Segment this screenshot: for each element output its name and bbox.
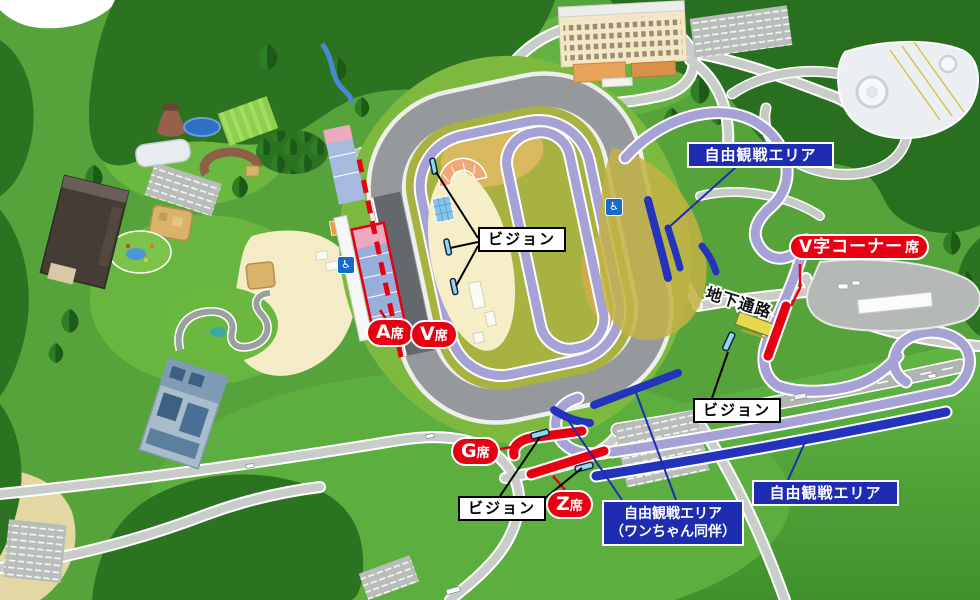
v-corner-seat-name: V字コーナー xyxy=(799,237,903,257)
dog-label-line1: 自由観戦エリア xyxy=(624,506,722,522)
vision-label-south: ビジョン xyxy=(458,496,546,521)
v-corner-seat-suffix: 席 xyxy=(905,240,919,257)
v-corner-seat-label: V字コーナー席 xyxy=(789,234,929,260)
seat-g-badge: G席 xyxy=(451,437,500,466)
seat-g-suffix: 席 xyxy=(477,446,490,462)
seat-v-letter: V xyxy=(420,323,435,346)
seat-g-letter: G xyxy=(461,440,477,463)
dog-label-line2: （ワンちゃん同伴） xyxy=(610,524,736,540)
seat-v-badge: V席 xyxy=(410,320,458,349)
pond xyxy=(184,118,220,136)
wheelchair-icon: ♿ xyxy=(337,256,355,274)
seat-z-letter: Z xyxy=(556,493,570,516)
seat-z-badge: Z席 xyxy=(546,490,593,519)
vision-label-center: ビジョン xyxy=(478,227,566,252)
free-viewing-area-label-south: 自由観戦エリア xyxy=(752,480,899,506)
seat-a-suffix: 席 xyxy=(391,327,404,343)
circuit-resort-map: 地下通路 自由観戦エリア V字コーナー席 ビジョン ビジョン ビジョン A席 V… xyxy=(0,0,980,600)
free-viewing-area-label-top: 自由観戦エリア xyxy=(687,142,834,168)
castle-attraction-2 xyxy=(246,262,275,290)
vision-label-east: ビジョン xyxy=(693,398,781,423)
seat-a-badge: A席 xyxy=(366,318,414,347)
free-viewing-area-dog-label: 自由観戦エリア（ワンちゃん同伴） xyxy=(602,500,744,546)
hotel-building xyxy=(558,1,688,89)
seat-v-suffix: 席 xyxy=(435,329,448,345)
wheelchair-icon: ♿ xyxy=(605,198,623,216)
seat-z-suffix: 席 xyxy=(570,499,583,515)
seat-a-letter: A xyxy=(376,321,391,344)
